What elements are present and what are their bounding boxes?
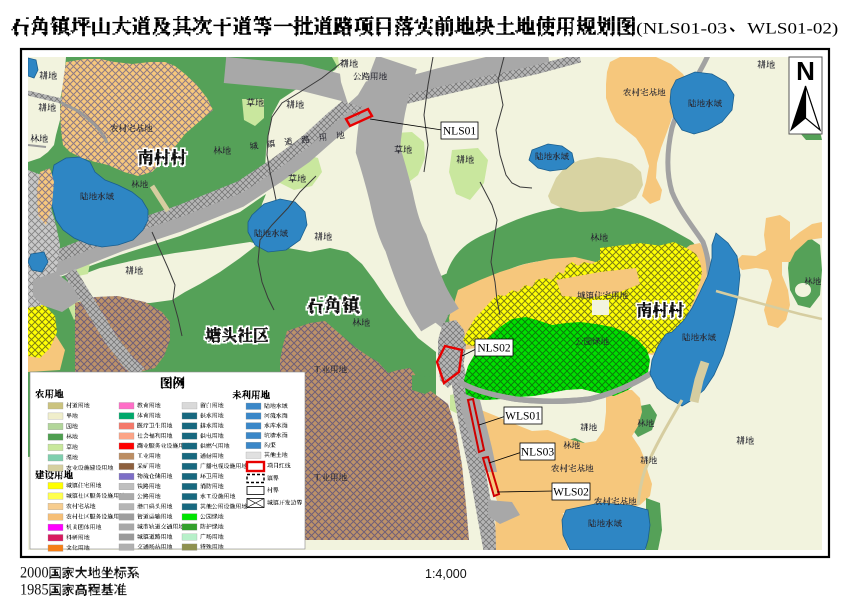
svg-text:1985: 1985 (20, 581, 49, 598)
svg-text:NLS02: NLS02 (477, 343, 510, 355)
svg-text:WLS02: WLS02 (553, 487, 589, 499)
svg-text:WLS01-02): WLS01-02) (747, 21, 838, 38)
svg-text:1:4,000: 1:4,000 (425, 567, 467, 581)
svg-text:N: N (796, 56, 815, 86)
svg-text:NLS03: NLS03 (521, 447, 554, 459)
svg-text:(NLS01-03: (NLS01-03 (636, 21, 727, 38)
svg-text:NLS01: NLS01 (443, 126, 476, 138)
svg-text:WLS01: WLS01 (505, 411, 541, 423)
svg-text:2000: 2000 (20, 564, 49, 581)
